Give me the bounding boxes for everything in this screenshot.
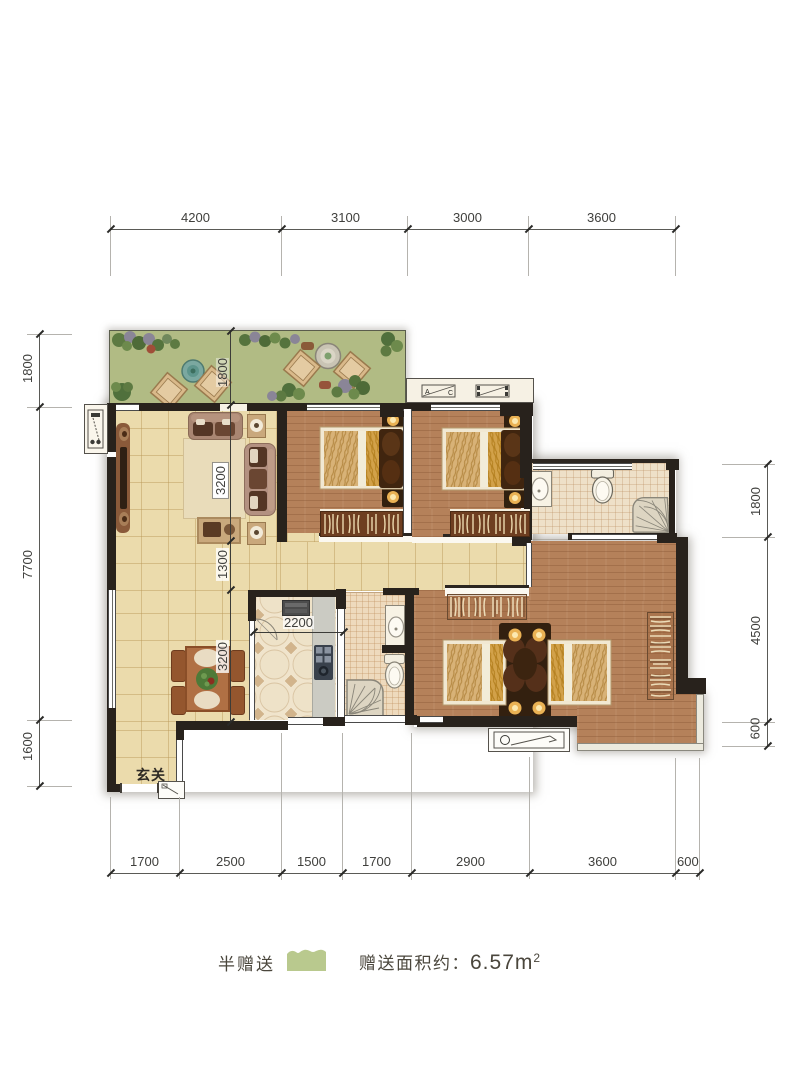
svg-text:A: A	[425, 389, 430, 396]
svg-text:C: C	[448, 390, 453, 397]
